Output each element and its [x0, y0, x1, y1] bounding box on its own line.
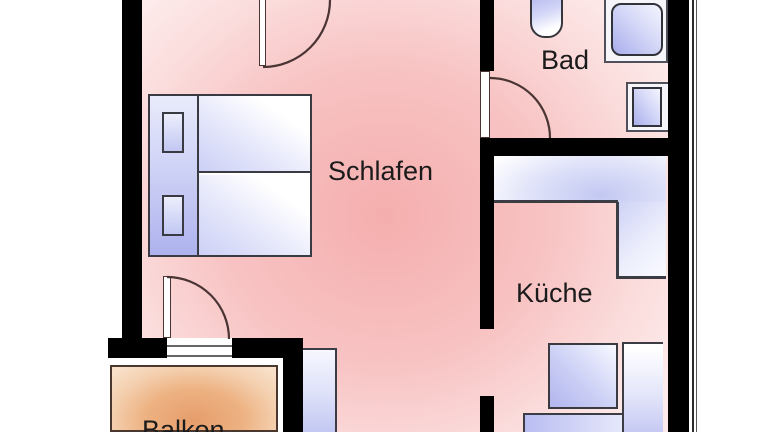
floor-plan: Schlafen Bad Küche Balkon	[0, 0, 768, 432]
room-label-schlafen: Schlafen	[328, 158, 433, 185]
wall-left	[122, 0, 142, 358]
wall-mid-middle	[480, 138, 494, 329]
counter-edge	[616, 202, 619, 278]
balcony-door-threshold	[167, 338, 232, 365]
hallway-cabinet	[303, 348, 337, 432]
counter-edge	[494, 200, 618, 203]
room-label-bad: Bad	[541, 47, 589, 74]
plan-outline-secondary	[696, 0, 697, 432]
door-leaf-schlafen	[259, 0, 266, 66]
wall-mid-upper	[480, 0, 494, 71]
wall-mid-lower	[480, 396, 494, 432]
threshold-line	[167, 355, 232, 357]
door-leaf-balkon	[163, 276, 171, 338]
room-label-kueche: Küche	[516, 280, 593, 307]
bed-mattress-bottom	[199, 175, 310, 255]
kitchen-counter-top	[494, 156, 666, 202]
toilet	[530, 0, 563, 38]
kitchen-counter-bottom	[523, 413, 622, 432]
shower	[611, 3, 663, 56]
stove	[548, 343, 618, 409]
bed-pillow-bottom	[162, 195, 184, 236]
wall-balcony-left	[108, 338, 167, 358]
double-bed	[148, 94, 312, 257]
plan-outline	[692, 0, 694, 432]
bed-mattress-top	[199, 96, 310, 173]
room-label-balkon: Balkon	[142, 417, 225, 432]
counter-edge	[616, 276, 666, 279]
kitchen-counter-corner	[618, 202, 666, 278]
bed-pillow-top	[162, 112, 184, 153]
washbasin	[632, 87, 662, 127]
wall-right	[668, 0, 689, 432]
threshold-line	[167, 345, 232, 347]
kitchen-counter-right	[622, 342, 663, 432]
door-leaf-bad	[480, 71, 490, 138]
wall-bad-kueche	[480, 138, 689, 156]
wall-hallway-vertical	[283, 338, 303, 432]
